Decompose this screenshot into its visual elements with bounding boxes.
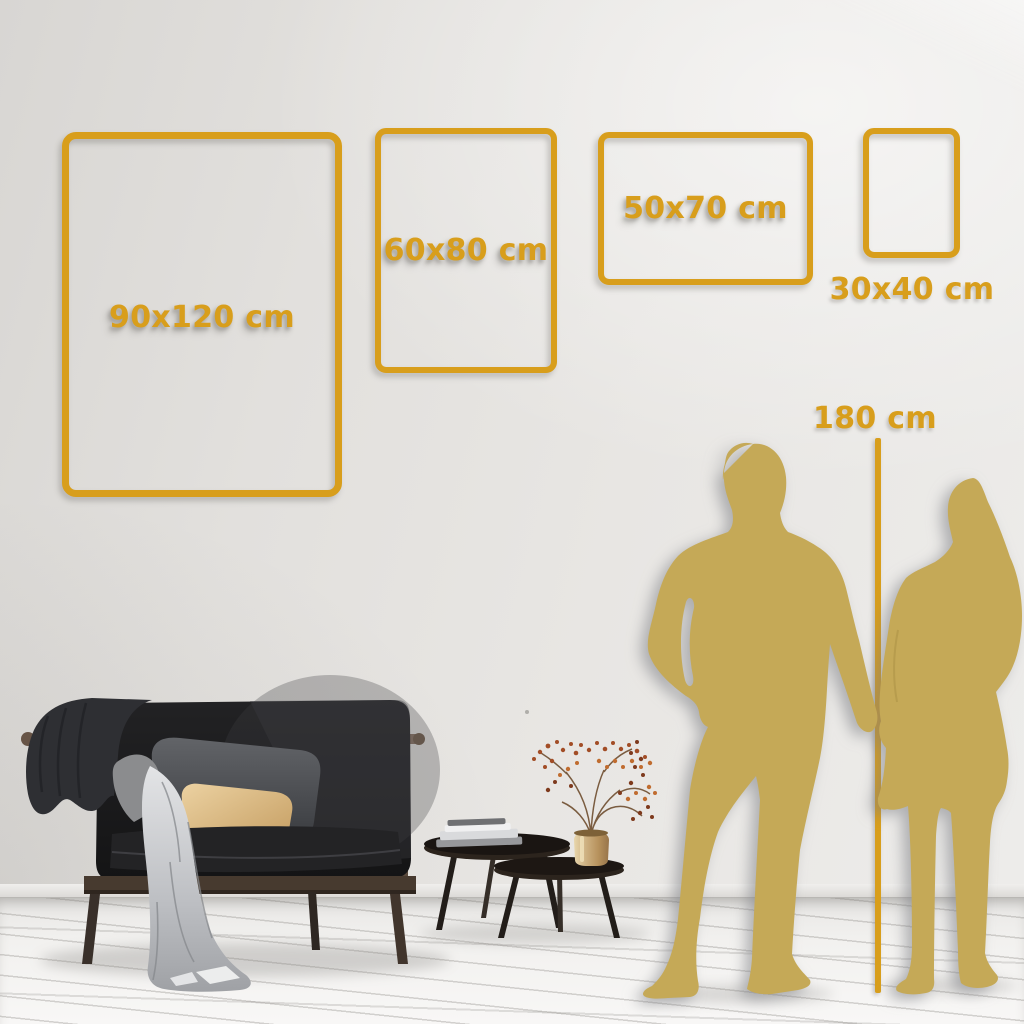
height-reference-label: 180 cm (810, 401, 940, 436)
size-label-60x80: 60x80 cm (384, 233, 549, 268)
size-frame-90x120: 90x120 cm (62, 132, 342, 497)
poster-size-guide: 90x120 cm 60x80 cm 50x70 cm 30x40 cm 180… (0, 0, 1024, 1024)
man-silhouette (643, 443, 877, 999)
table-leg (481, 850, 497, 918)
size-label-50x70: 50x70 cm (623, 191, 788, 226)
wall-hook (525, 710, 529, 714)
size-label-30x40: 30x40 cm (826, 272, 998, 307)
couple-silhouette (640, 440, 1024, 1000)
brass-vase (574, 832, 609, 866)
size-frame-50x70: 50x70 cm (598, 132, 813, 285)
woman-silhouette (878, 478, 1022, 994)
table-leg (436, 852, 458, 930)
size-label-90x120: 90x120 cm (109, 300, 295, 335)
table-leg (557, 872, 563, 932)
books (435, 817, 522, 847)
size-frame-60x80: 60x80 cm (375, 128, 557, 373)
size-frame-30x40 (863, 128, 960, 258)
sofa-leg (308, 892, 320, 950)
